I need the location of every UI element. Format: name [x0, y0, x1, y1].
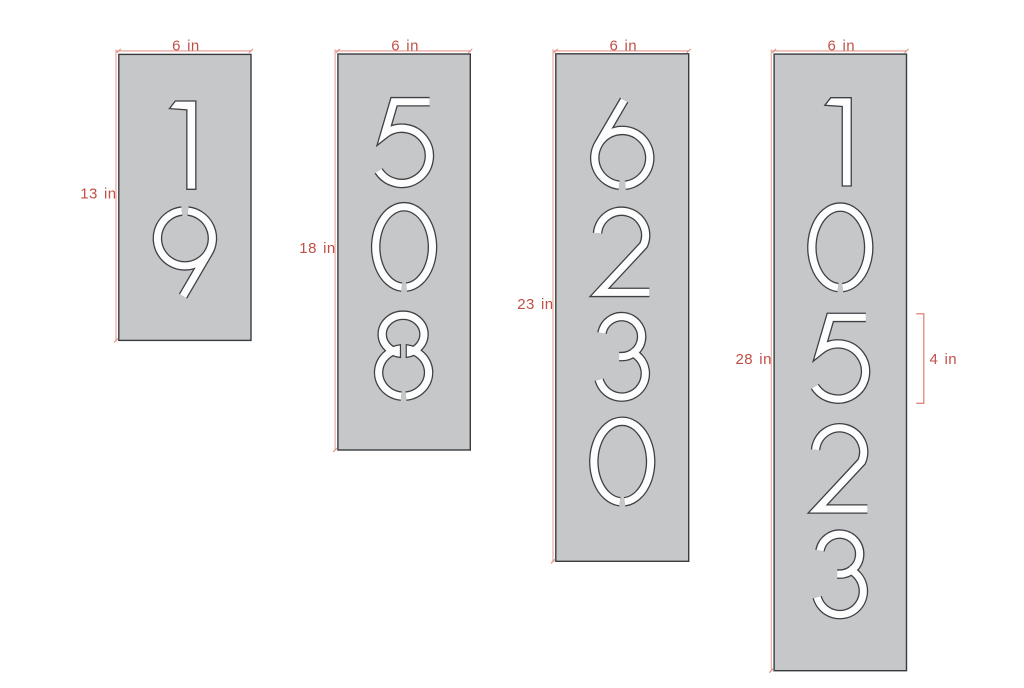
svg-text:6 in: 6 in: [391, 37, 419, 54]
svg-text:6 in: 6 in: [172, 37, 200, 54]
svg-text:6 in: 6 in: [609, 37, 637, 54]
svg-text:18 in: 18 in: [299, 240, 335, 257]
svg-text:23 in: 23 in: [517, 296, 553, 313]
svg-text:6 in: 6 in: [828, 37, 856, 54]
svg-text:28 in: 28 in: [736, 351, 772, 368]
svg-text:13 in: 13 in: [80, 186, 116, 203]
svg-text:4 in: 4 in: [930, 351, 958, 368]
